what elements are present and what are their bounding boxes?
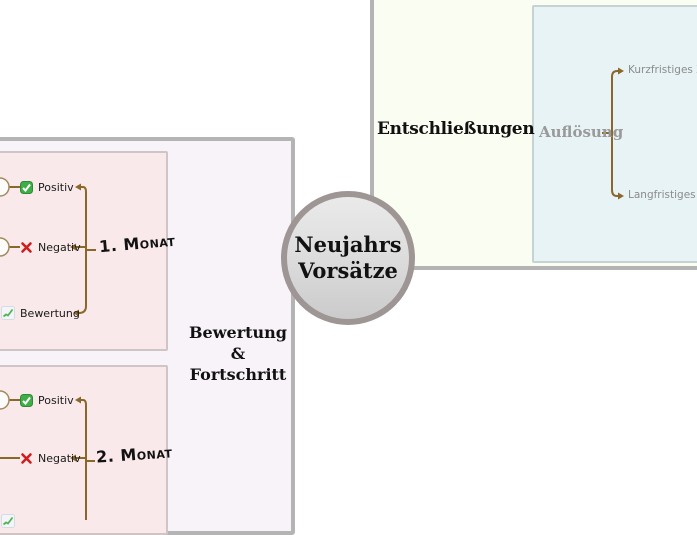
node-circle[interactable]: [0, 178, 9, 196]
check-icon: [20, 394, 33, 407]
leaf-month1-negativ[interactable]: Negativ: [20, 239, 81, 255]
leaf-label: Negativ: [38, 452, 81, 465]
leaf-kurzfristiges-ziel[interactable]: Kurzfristiges Zi: [628, 64, 697, 76]
leaf-month2-negativ[interactable]: Negativ: [20, 450, 81, 466]
leaf-langfristiges-ziel[interactable]: Langfristiges Zi: [628, 189, 697, 201]
branch-title-bewertung-fortschritt[interactable]: Bewertung & Fortschritt: [180, 322, 296, 385]
leaf-month2-positiv[interactable]: Positiv: [20, 392, 74, 408]
eval-title-line2: &: [180, 343, 296, 364]
chart-icon: [1, 514, 15, 528]
cross-icon: [20, 241, 33, 254]
node-auflosung[interactable]: Auflösung: [539, 123, 623, 141]
cross-icon: [20, 452, 33, 465]
leaf-label: Positiv: [38, 394, 74, 407]
branch-title-entschliessungen[interactable]: Entschließungen: [377, 119, 534, 139]
leaf-label: Negativ: [38, 241, 81, 254]
eval-title-line3: Fortschritt: [180, 364, 296, 385]
node-circle[interactable]: [0, 391, 9, 409]
central-topic-line1: Neujahrs: [294, 232, 401, 258]
chart-icon: [1, 306, 15, 320]
collapsed-node-circles: [0, 178, 9, 409]
leaf-month1-bewertung[interactable]: Bewertung: [1, 305, 80, 321]
eval-title-line1: Bewertung: [180, 322, 296, 343]
leaf-label: Positiv: [38, 181, 74, 194]
central-topic-line2: Vorsätze: [298, 258, 398, 284]
leaf-month1-positiv[interactable]: Positiv: [20, 179, 74, 195]
node-circle[interactable]: [0, 238, 9, 256]
leaf-label: Bewertung: [20, 307, 80, 320]
central-topic-neujahrs-vorsaetze[interactable]: Neujahrs Vorsätze: [281, 191, 415, 325]
check-icon: [20, 181, 33, 194]
